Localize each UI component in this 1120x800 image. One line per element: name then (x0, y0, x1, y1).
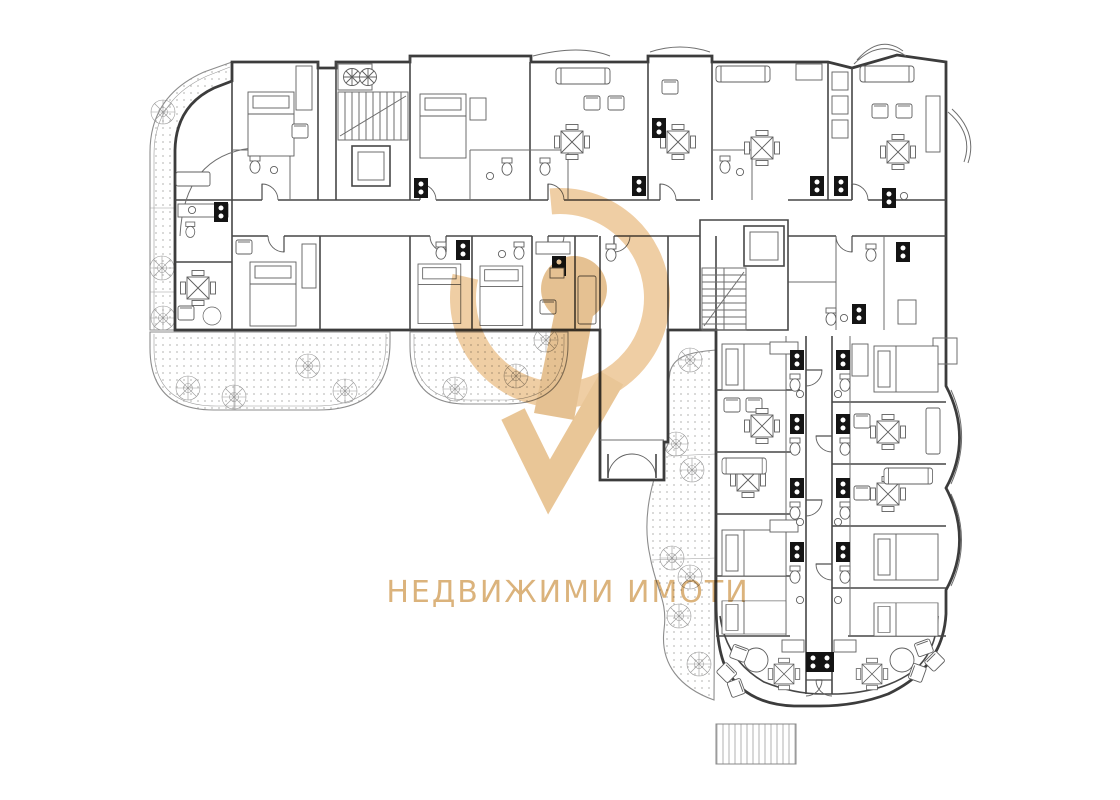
toilet-icon (540, 158, 550, 175)
stove-icon (456, 240, 470, 260)
toilet-icon (720, 156, 730, 173)
tree-icon (222, 385, 246, 409)
sofa-icon (176, 172, 210, 186)
stove-icon (882, 188, 896, 208)
sink-icon (188, 206, 195, 213)
sink-icon (270, 166, 277, 173)
stove-icon (852, 304, 866, 324)
tree-icon (680, 458, 704, 482)
wardrobe (296, 66, 312, 110)
bed-icon (874, 346, 938, 392)
fan-icon (360, 69, 377, 86)
watermark-brand-text: НЕДВИЖИМИ ИМОТИ (386, 575, 749, 610)
tree-icon (687, 652, 711, 676)
round-table-icon (890, 648, 914, 672)
tree-icon (443, 377, 467, 401)
sofa-icon (926, 408, 940, 454)
stove-icon (790, 478, 804, 498)
bed-icon (480, 266, 523, 326)
southwest-garden (150, 332, 390, 410)
stove-icon (896, 242, 910, 262)
stove-icon (214, 202, 228, 222)
bed-icon (874, 603, 938, 636)
sink-icon (486, 172, 493, 179)
wardrobe (770, 520, 798, 532)
toilet-icon (250, 156, 260, 173)
toilet-icon (866, 244, 876, 261)
sink-icon (796, 390, 803, 397)
sofa-icon (884, 468, 933, 484)
sofa-icon (302, 244, 316, 288)
tree-icon (150, 256, 174, 280)
toilet-icon (790, 566, 800, 583)
stove-icon (414, 178, 428, 198)
tree-icon (333, 379, 357, 403)
stove-icon (790, 542, 804, 562)
toilet-icon (826, 308, 836, 325)
fan-icon (344, 69, 361, 86)
stove-icon (836, 542, 850, 562)
armchair-icon (896, 104, 912, 118)
armchair-icon (292, 124, 308, 138)
bed-icon (722, 530, 786, 576)
stove-icon (806, 652, 820, 672)
sofa-icon (860, 66, 914, 82)
toilet-icon (840, 566, 850, 583)
stove-icon (652, 118, 666, 138)
sink-icon (796, 596, 803, 603)
sink-icon (834, 596, 841, 603)
sink-icon (840, 314, 847, 321)
toilet-icon (840, 438, 850, 455)
wardrobe (926, 96, 940, 152)
toilet-icon (790, 438, 800, 455)
stove-icon (836, 350, 850, 370)
bed-icon (874, 534, 938, 580)
armchair-icon (854, 486, 870, 500)
stove-icon (810, 176, 824, 196)
stove-icon (836, 414, 850, 434)
floor-plan-drawing (0, 0, 1120, 800)
stove-icon (820, 652, 834, 672)
round-table-icon (203, 307, 221, 325)
toilet-icon (502, 158, 512, 175)
sink-icon (736, 168, 743, 175)
tree-icon (151, 100, 175, 124)
floor-plan-page: НЕДВИЖИМИ ИМОТИ (0, 0, 1120, 800)
stove-icon (836, 478, 850, 498)
armchair-icon (608, 96, 624, 110)
toilet-icon (790, 374, 800, 391)
armchair-icon (872, 104, 888, 118)
stove-icon (790, 414, 804, 434)
toilet-icon (790, 502, 800, 519)
kitchen-counter (782, 640, 804, 652)
kitchen-counter (536, 242, 570, 254)
south-deck (716, 724, 796, 764)
armchair-icon (854, 414, 870, 428)
toilet-icon (606, 244, 616, 261)
bed-icon (420, 94, 466, 158)
sofa-icon (716, 66, 770, 82)
stove-icon (632, 176, 646, 196)
stove-icon (834, 176, 848, 196)
tree-icon (678, 348, 702, 372)
sink-icon (834, 390, 841, 397)
armchair-icon (662, 80, 678, 94)
armchair-icon (178, 306, 194, 320)
armchair-icon (724, 398, 740, 412)
toilet-icon (436, 242, 446, 259)
tree-icon (660, 546, 684, 570)
sink-icon (834, 518, 841, 525)
tree-icon (176, 376, 200, 400)
wardrobe (852, 344, 868, 376)
stove-icon (790, 350, 804, 370)
toilet-icon (840, 502, 850, 519)
tree-icon (151, 306, 175, 330)
tree-icon (296, 354, 320, 378)
armchair-icon (584, 96, 600, 110)
bed-icon (248, 92, 294, 156)
toilet-icon (186, 222, 195, 237)
sofa-icon (556, 68, 610, 84)
armchair-icon (236, 240, 252, 254)
kitchen-counter (834, 640, 856, 652)
sink-icon (796, 518, 803, 525)
toilet-icon (840, 374, 850, 391)
sink-icon (900, 192, 907, 199)
toilet-icon (514, 242, 524, 259)
sink-icon (498, 250, 505, 257)
bed-icon (250, 262, 296, 326)
sofa-icon (722, 458, 766, 474)
